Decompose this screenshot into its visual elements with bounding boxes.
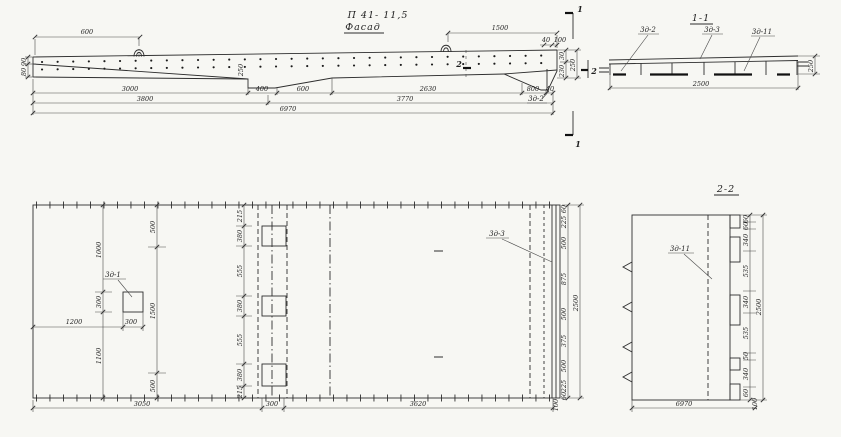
edge-ledge	[730, 215, 740, 228]
blueprint-sheet: П 41- 11,5 Фасад 600 1500 90 80	[0, 0, 841, 437]
section-2-2-view: 2-2 3д-11 60 60 340 535 340 535 50 340 6…	[623, 184, 767, 412]
part-label-3d11: 3д-11	[670, 245, 690, 253]
mesh-plate	[262, 226, 286, 246]
mesh-plate	[262, 296, 286, 316]
mesh-plate	[262, 364, 286, 386]
dim-label: 340	[742, 368, 750, 380]
dim-label: 1000	[95, 242, 103, 259]
plan-outline	[33, 205, 560, 398]
dim-label: 555	[236, 265, 244, 277]
edge-ledge	[730, 295, 740, 325]
panel-ribs	[610, 61, 797, 75]
facade-view-title: Фасад	[345, 22, 381, 33]
section-1-mark-bottom: 1	[575, 139, 581, 149]
dim-label: 500	[560, 308, 568, 320]
dim-label: 100	[552, 399, 560, 411]
dim-label: 340	[742, 296, 750, 308]
part-label-3d11: 3д-11	[752, 28, 772, 36]
stud-dots-row2	[42, 63, 548, 70]
dim-label: 215	[236, 210, 244, 223]
part-label-3d2: 3д-2	[528, 95, 544, 103]
dim-label: 400	[255, 85, 268, 93]
plan-view: 3д-1 1000 300 1100 500 1500 500 1200 300…	[33, 205, 584, 412]
edge-ledge	[730, 358, 740, 370]
dim-label: 40	[545, 85, 554, 93]
dim-label: 80	[20, 68, 28, 76]
dim-label: 3000	[122, 85, 139, 93]
dim-label: 1500	[492, 24, 509, 32]
dim-label: 6970	[280, 105, 297, 113]
part-label-3d3: 3д-3	[489, 230, 505, 238]
dim-label: 250	[569, 59, 577, 72]
dim-label: 60	[742, 222, 750, 230]
weld-marks	[434, 251, 443, 357]
dim-label: 535	[742, 265, 750, 277]
dim-label: 3620	[410, 400, 427, 408]
section-2-mark-right: 2	[590, 66, 597, 76]
dim-label: 535	[742, 327, 750, 339]
section-2-2-title: 2-2	[716, 184, 735, 195]
dim-label: 600	[297, 85, 309, 93]
break-marks	[623, 262, 632, 382]
title-block: П 41- 11,5 Фасад	[344, 10, 408, 33]
dim-label: 1200	[66, 318, 83, 326]
dim-label: 300	[266, 400, 278, 408]
embedded-plate-3d1	[123, 292, 143, 312]
dim-label: 380	[236, 300, 244, 312]
beam-band-line	[504, 70, 557, 74]
dim-label: 230	[558, 65, 566, 78]
dim-label: 2500	[572, 295, 580, 313]
part-label-3d3: 3д-3	[704, 26, 720, 34]
dim-label: 800	[527, 85, 539, 93]
dim-label: 3050	[134, 400, 151, 408]
dim-label: 250	[807, 60, 815, 73]
dim-label: 380	[236, 230, 244, 242]
dim-label: 500	[149, 221, 157, 233]
part-label-3d2: 3д-2	[640, 26, 656, 34]
panel-slab-line	[609, 61, 798, 65]
dim-label: 2500	[755, 299, 763, 317]
dim-label: 340	[742, 234, 750, 246]
section-1-1-view: 1-1 2500 250 3д-2 3д-3 3д-11	[599, 13, 820, 90]
dim-label: 225	[560, 380, 568, 393]
dim-label: 6970	[676, 400, 693, 408]
dim-label: 380	[236, 369, 244, 381]
dim-label: 500	[560, 237, 568, 249]
dim-label: 600	[81, 28, 93, 36]
drawing-canvas: П 41- 11,5 Фасад 600 1500 90 80	[0, 0, 841, 437]
drawing-code: П 41- 11,5	[347, 10, 409, 21]
edge-ledge	[730, 384, 740, 400]
dim-label: 500	[149, 380, 157, 392]
dim-label: 555	[236, 334, 244, 346]
dim-label: 2630	[419, 85, 437, 93]
dim-label: 300	[125, 318, 137, 326]
dim-label: 1100	[95, 348, 103, 365]
dim-label: 250	[237, 64, 245, 77]
dim-label: 875	[560, 273, 568, 285]
dim-label: 100	[554, 36, 566, 44]
dim-label: 60	[742, 389, 750, 397]
dim-label: 500	[560, 360, 568, 372]
dim-label: 30	[558, 52, 566, 60]
dim-label: 225	[560, 216, 568, 229]
concrete-section	[632, 215, 730, 400]
facade-view: 600 1500 90 80 250 2 40 100 30 230 250	[20, 4, 597, 149]
dim-label: 375	[560, 335, 568, 347]
stud-dots-row1	[42, 56, 548, 63]
dim-label: 3770	[397, 95, 414, 103]
beam-taper-line	[33, 64, 248, 79]
dim-label: 300	[95, 296, 103, 308]
dim-label: 2500	[692, 80, 710, 88]
section-1-1-title: 1-1	[692, 13, 710, 24]
section-2-inner-mark: 2	[455, 59, 462, 69]
panel-top-edge	[609, 56, 798, 60]
dim-label: 3800	[137, 95, 154, 103]
section-1-mark-top: 1	[577, 4, 583, 14]
dim-label: 50	[742, 352, 750, 360]
part-label-3d1: 3д-1	[105, 271, 121, 279]
dim-label: 1500	[149, 303, 157, 320]
edge-ledge	[730, 237, 740, 262]
